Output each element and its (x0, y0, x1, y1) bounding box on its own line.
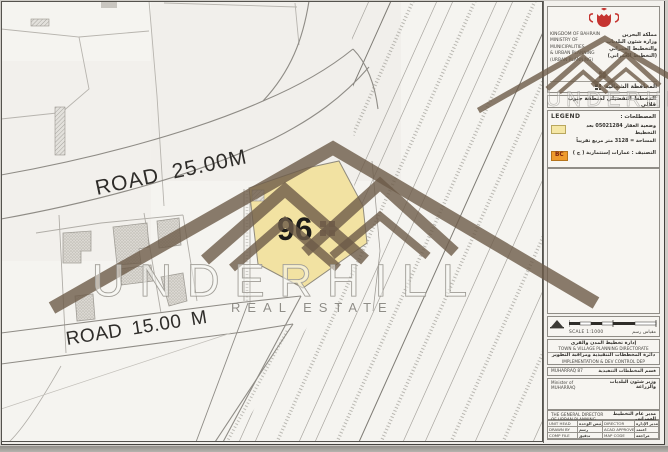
ministry-name-ar: مملكة البحرين وزارة شئون البلديات والتخط… (606, 32, 657, 64)
signature-box-minister: Minister of MUHARRAQ وزير شئون البلديات … (547, 378, 660, 410)
scale-label: SCALE 1:1000 (569, 330, 604, 335)
blank-box (547, 168, 660, 314)
reference-row: MUHARRAQ 87 قسم المخططات التنفيذية (547, 367, 660, 376)
bahrain-emblem-icon (589, 8, 619, 31)
panel-header: KINGDOM OF BAHRAIN MINISTRY OF MUNICIPAL… (547, 6, 660, 93)
reference-section: قسم المخططات التنفيذية (598, 369, 656, 374)
scale-box: SCALE 1:1000 مقياس رسم (547, 316, 660, 337)
table-cell: MAP CODE (603, 433, 635, 439)
classification-text: التصنيف : عمارات إستثمارية ( ج ) (571, 150, 656, 158)
scan-edge (0, 446, 668, 452)
plot-status-text: وضعية العقار 05021284 بعد التخطيط المساح… (569, 123, 656, 145)
legend-label-en: LEGEND (551, 113, 580, 120)
cadastral-map: 96 ROAD 25.00M ROAD 15.00 M (1, 1, 543, 442)
plot-number: 96 (277, 211, 313, 247)
north-arrow-icon (550, 319, 566, 330)
scale-label-ar: مقياس رسم (632, 330, 656, 335)
reference-number: MUHARRAQ 87 (551, 369, 583, 374)
classification-badge: BC (551, 151, 568, 161)
legend-panel: KINGDOM OF BAHRAIN MINISTRY OF MUNICIPAL… (543, 1, 664, 443)
windows-icon (595, 84, 601, 90)
plan-title: المخطط التفصيلي لمنطقة جنوب قلالي (551, 96, 656, 108)
hatched-strip-small (31, 19, 49, 26)
small-structure (101, 2, 117, 8)
legend-box: LEGEND المصطلحات : وضعية العقار 05021284… (547, 110, 660, 168)
plot-color-swatch (551, 125, 566, 134)
table-cell: تدقيق (578, 433, 603, 439)
directorate-box: إدارة تخطيط المدن والقرى TOWN & VILLAGE … (547, 339, 660, 365)
hatched-strip (55, 107, 65, 155)
table-cell: مراجعة (635, 433, 659, 439)
table-cell: COMP FILE (548, 433, 578, 439)
approval-table: UNIT HEAD رئيس الوحدة DIRECTOR مدير الإد… (547, 420, 660, 440)
directorate-1: إدارة تخطيط المدن والقرى TOWN & VILLAGE … (548, 340, 659, 352)
governorate-row: المحافظة الشمالية (550, 81, 657, 90)
governorate-name: المحافظة الشمالية (605, 84, 657, 90)
directorate-2: دائرة المخططات التنفيذية ومراقبة التطوير… (548, 352, 659, 364)
plan-title-box: المخطط التفصيلي لمنطقة جنوب قلالي (547, 95, 660, 108)
scanned-site-plan: 96 ROAD 25.00M ROAD 15.00 M KINGDOM OF B… (0, 0, 668, 452)
signature-box-director: THE GENERAL DIRECTOR OF URBAN PLANNING م… (547, 410, 660, 420)
scale-bar (569, 320, 657, 328)
legend-label-ar: المصطلحات : (620, 114, 656, 120)
ministry-name-en: KINGDOM OF BAHRAIN MINISTRY OF MUNICIPAL… (550, 32, 604, 64)
